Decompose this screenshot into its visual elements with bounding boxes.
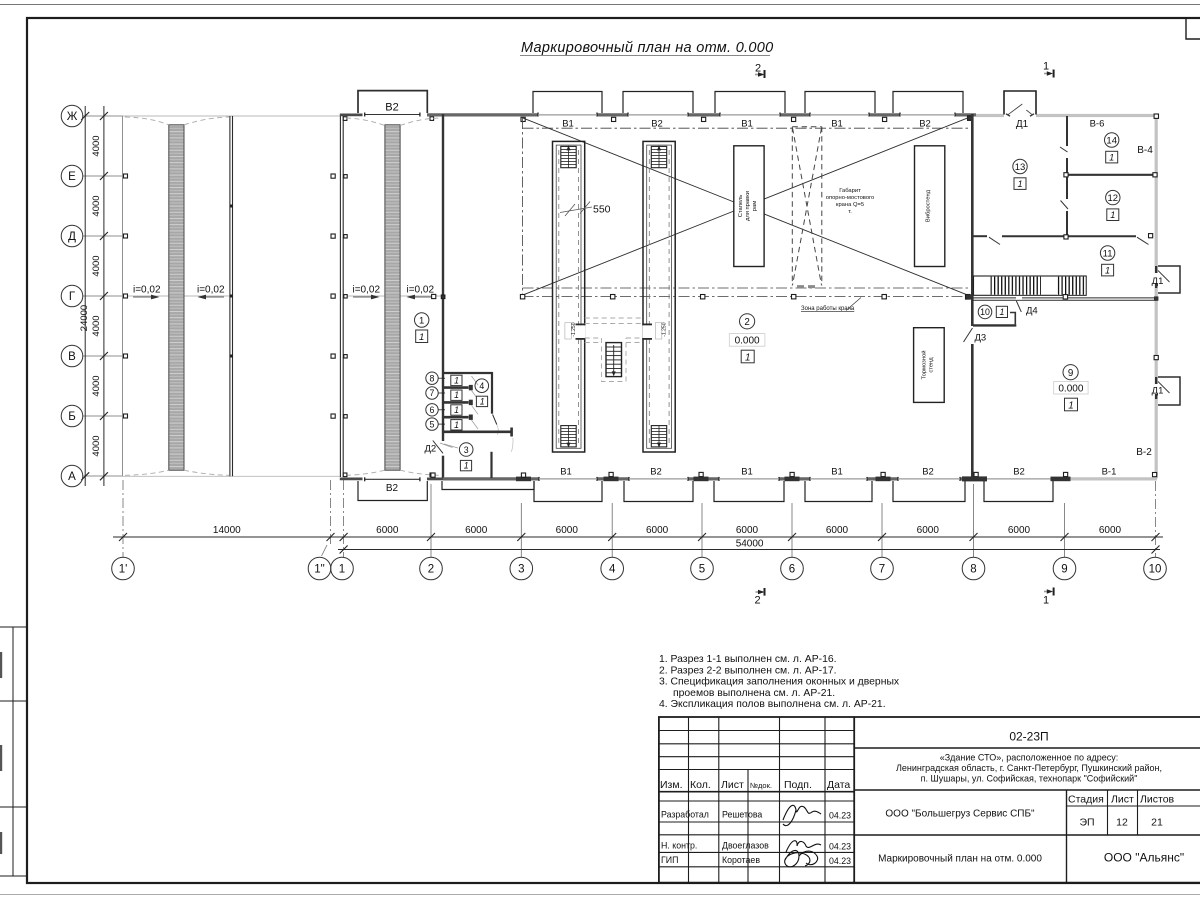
svg-text:Д4: Д4 xyxy=(1026,306,1038,317)
svg-text:Маркировочный план на отм. 0.0: Маркировочный план на отм. 0.000 xyxy=(521,40,773,56)
svg-text:Решетова: Решетова xyxy=(722,810,762,820)
svg-text:Габарит: Габарит xyxy=(839,188,861,194)
svg-text:Вибростенд: Вибростенд xyxy=(926,189,932,222)
svg-text:1': 1' xyxy=(119,564,128,576)
svg-text:6: 6 xyxy=(789,564,795,576)
svg-text:Разработал: Разработал xyxy=(661,810,709,820)
svg-text:2: 2 xyxy=(744,317,749,328)
svg-text:4000: 4000 xyxy=(91,135,102,156)
svg-text:1": 1" xyxy=(314,564,324,576)
svg-text:Листов: Листов xyxy=(1140,794,1175,806)
svg-text:В-4: В-4 xyxy=(1137,145,1153,156)
svg-text:4000: 4000 xyxy=(91,195,102,216)
svg-text:Ж: Ж xyxy=(67,111,78,123)
svg-text:4000: 4000 xyxy=(91,255,102,276)
svg-text:Тормозной: Тормозной xyxy=(921,350,928,379)
svg-text:04.23: 04.23 xyxy=(829,856,851,866)
svg-text:-1.250: -1.250 xyxy=(662,322,668,336)
svg-text:4. Экспликация полов выполнена: 4. Экспликация полов выполнена см. л. АР… xyxy=(659,699,886,710)
svg-text:1: 1 xyxy=(1000,307,1005,317)
svg-text:4000: 4000 xyxy=(91,315,102,336)
svg-text:54000: 54000 xyxy=(736,539,764,550)
svg-text:4000: 4000 xyxy=(91,435,102,456)
svg-text:Маркировочный план на отм. 0.0: Маркировочный план на отм. 0.000 xyxy=(878,854,1042,865)
svg-text:ООО "Большегруз Сервис СПБ": ООО "Большегруз Сервис СПБ" xyxy=(885,809,1035,820)
svg-text:Зона работы крана: Зона работы крана xyxy=(801,306,855,312)
svg-text:В-1: В-1 xyxy=(1102,467,1117,478)
svg-text:1: 1 xyxy=(454,405,459,415)
svg-text:В1: В1 xyxy=(831,467,843,478)
svg-text:В: В xyxy=(68,351,76,363)
svg-text:7: 7 xyxy=(879,564,885,576)
svg-text:4: 4 xyxy=(479,381,484,391)
svg-text:Коротаев: Коротаев xyxy=(722,855,760,865)
svg-text:6000: 6000 xyxy=(826,525,849,536)
svg-text:п. Шушары, ул. Софийская, техн: п. Шушары, ул. Софийская, технопарк "Соф… xyxy=(921,774,1138,784)
svg-text:А: А xyxy=(68,471,76,483)
svg-text:Изм.: Изм. xyxy=(660,779,683,791)
svg-text:рам: рам xyxy=(752,201,758,211)
svg-text:8: 8 xyxy=(430,373,435,383)
svg-text:Кол.: Кол. xyxy=(690,779,711,791)
svg-text:2: 2 xyxy=(754,595,760,607)
svg-text:4000: 4000 xyxy=(91,375,102,396)
svg-text:1: 1 xyxy=(1017,179,1022,189)
svg-text:В-6: В-6 xyxy=(1090,119,1105,130)
svg-text:12: 12 xyxy=(1108,193,1119,204)
svg-text:1: 1 xyxy=(1043,595,1049,607)
svg-text:1: 1 xyxy=(1109,153,1114,163)
svg-text:02-23П: 02-23П xyxy=(1009,730,1048,744)
svg-text:-1.250: -1.250 xyxy=(571,322,577,336)
svg-text:12: 12 xyxy=(1116,817,1128,829)
svg-text:Подп.: Подп. xyxy=(784,779,812,791)
svg-text:ГИП: ГИП xyxy=(661,855,678,865)
svg-text:0.000: 0.000 xyxy=(735,336,760,347)
svg-text:6000: 6000 xyxy=(1008,525,1031,536)
svg-text:Д2: Д2 xyxy=(425,444,437,455)
svg-text:1: 1 xyxy=(454,420,459,430)
svg-text:3: 3 xyxy=(518,564,524,576)
svg-text:В2: В2 xyxy=(386,483,399,494)
svg-text:Лист: Лист xyxy=(721,779,744,791)
svg-text:Д3: Д3 xyxy=(975,333,987,344)
svg-text:6000: 6000 xyxy=(646,525,669,536)
svg-text:i=0,02: i=0,02 xyxy=(353,285,381,296)
svg-text:5: 5 xyxy=(430,419,435,429)
svg-text:Д1: Д1 xyxy=(1016,119,1029,130)
svg-text:Г: Г xyxy=(69,291,76,303)
svg-text:13: 13 xyxy=(1015,162,1026,173)
svg-text:Д1: Д1 xyxy=(1152,276,1164,287)
svg-text:1. Разрез 1-1 выполнен см. л.: 1. Разрез 1-1 выполнен см. л. АР-16. xyxy=(659,654,837,665)
svg-text:Стадия: Стадия xyxy=(1068,794,1104,806)
svg-text:550: 550 xyxy=(593,204,611,216)
svg-text:Стапель: Стапель xyxy=(738,195,744,218)
svg-text:В1: В1 xyxy=(741,467,753,478)
svg-text:6000: 6000 xyxy=(736,525,759,536)
svg-text:14: 14 xyxy=(1106,136,1117,147)
svg-text:6000: 6000 xyxy=(465,525,488,536)
svg-text:т.: т. xyxy=(848,209,852,215)
svg-text:9: 9 xyxy=(1068,368,1073,379)
svg-text:стенд: стенд xyxy=(929,357,935,373)
svg-text:i=0,02: i=0,02 xyxy=(133,285,161,296)
svg-text:Дата: Дата xyxy=(827,779,850,791)
svg-text:10: 10 xyxy=(980,307,990,317)
svg-text:1: 1 xyxy=(480,396,485,406)
svg-text:21: 21 xyxy=(1151,817,1163,829)
svg-text:В2: В2 xyxy=(385,101,398,113)
svg-text:В-2: В-2 xyxy=(1136,447,1152,458)
svg-text:проемов выполнена см. л. АР-21: проемов выполнена см. л. АР-21. xyxy=(673,688,835,699)
svg-text:В1: В1 xyxy=(560,467,572,478)
svg-text:11: 11 xyxy=(1103,249,1113,260)
svg-text:«Здание СТО», расположенное по: «Здание СТО», расположенное по адресу: xyxy=(940,753,1119,763)
svg-text:5: 5 xyxy=(699,564,705,576)
svg-text:Д: Д xyxy=(68,231,76,243)
svg-text:24000: 24000 xyxy=(79,305,90,331)
svg-text:1: 1 xyxy=(454,375,459,385)
svg-text:8: 8 xyxy=(970,564,976,576)
svg-text:1: 1 xyxy=(419,316,424,327)
svg-text:Лист: Лист xyxy=(1111,794,1134,806)
svg-text:для правки: для правки xyxy=(745,191,751,221)
svg-text:Н. контр.: Н. контр. xyxy=(661,841,697,851)
svg-text:i=0,02: i=0,02 xyxy=(407,285,435,296)
svg-text:10: 10 xyxy=(1149,564,1162,576)
svg-text:1: 1 xyxy=(464,461,469,471)
svg-text:0.000: 0.000 xyxy=(1058,383,1083,394)
svg-text:6000: 6000 xyxy=(556,525,579,536)
svg-text:Двоеглазов: Двоеглазов xyxy=(722,841,769,851)
svg-text:ЭП: ЭП xyxy=(1079,817,1094,829)
svg-text:04.23: 04.23 xyxy=(829,811,851,821)
svg-text:9: 9 xyxy=(1061,564,1067,576)
svg-text:1: 1 xyxy=(745,352,750,363)
svg-text:1: 1 xyxy=(1068,400,1073,411)
svg-text:№док.: №док. xyxy=(750,781,772,790)
svg-text:1: 1 xyxy=(1043,61,1049,73)
svg-text:Ленинградская область, г. Санк: Ленинградская область, г. Санкт-Петербур… xyxy=(896,763,1162,773)
svg-text:04.23: 04.23 xyxy=(829,842,851,852)
svg-text:6000: 6000 xyxy=(1099,525,1122,536)
svg-text:опорно-мостового: опорно-мостового xyxy=(826,195,875,201)
svg-text:крана Q=5: крана Q=5 xyxy=(836,202,864,208)
svg-text:Б: Б xyxy=(68,411,76,423)
svg-text:В2: В2 xyxy=(650,467,662,478)
svg-text:6000: 6000 xyxy=(376,525,399,536)
svg-text:3: 3 xyxy=(464,445,469,455)
svg-text:4: 4 xyxy=(609,564,616,576)
svg-text:1: 1 xyxy=(1110,210,1115,220)
svg-text:ООО "Альянс": ООО "Альянс" xyxy=(1104,851,1184,865)
svg-text:6000: 6000 xyxy=(917,525,940,536)
svg-text:1: 1 xyxy=(454,390,459,400)
svg-text:1: 1 xyxy=(339,564,345,576)
svg-text:1: 1 xyxy=(419,332,424,343)
svg-text:14000: 14000 xyxy=(213,525,241,536)
svg-text:3. Спецификация заполнения око: 3. Спецификация заполнения оконных и две… xyxy=(659,676,900,688)
svg-text:i=0,02: i=0,02 xyxy=(197,285,225,296)
svg-text:В2: В2 xyxy=(1013,467,1025,478)
svg-text:1: 1 xyxy=(1105,266,1110,276)
svg-text:2: 2 xyxy=(428,564,434,576)
svg-text:Е: Е xyxy=(68,171,76,183)
svg-text:2. Разрез 2-2 выполнен см. л.: 2. Разрез 2-2 выполнен см. л. АР-17. xyxy=(659,665,837,676)
svg-text:6: 6 xyxy=(430,405,435,415)
svg-text:В2: В2 xyxy=(922,467,934,478)
svg-text:Д1: Д1 xyxy=(1152,386,1164,397)
svg-text:7: 7 xyxy=(430,388,435,398)
